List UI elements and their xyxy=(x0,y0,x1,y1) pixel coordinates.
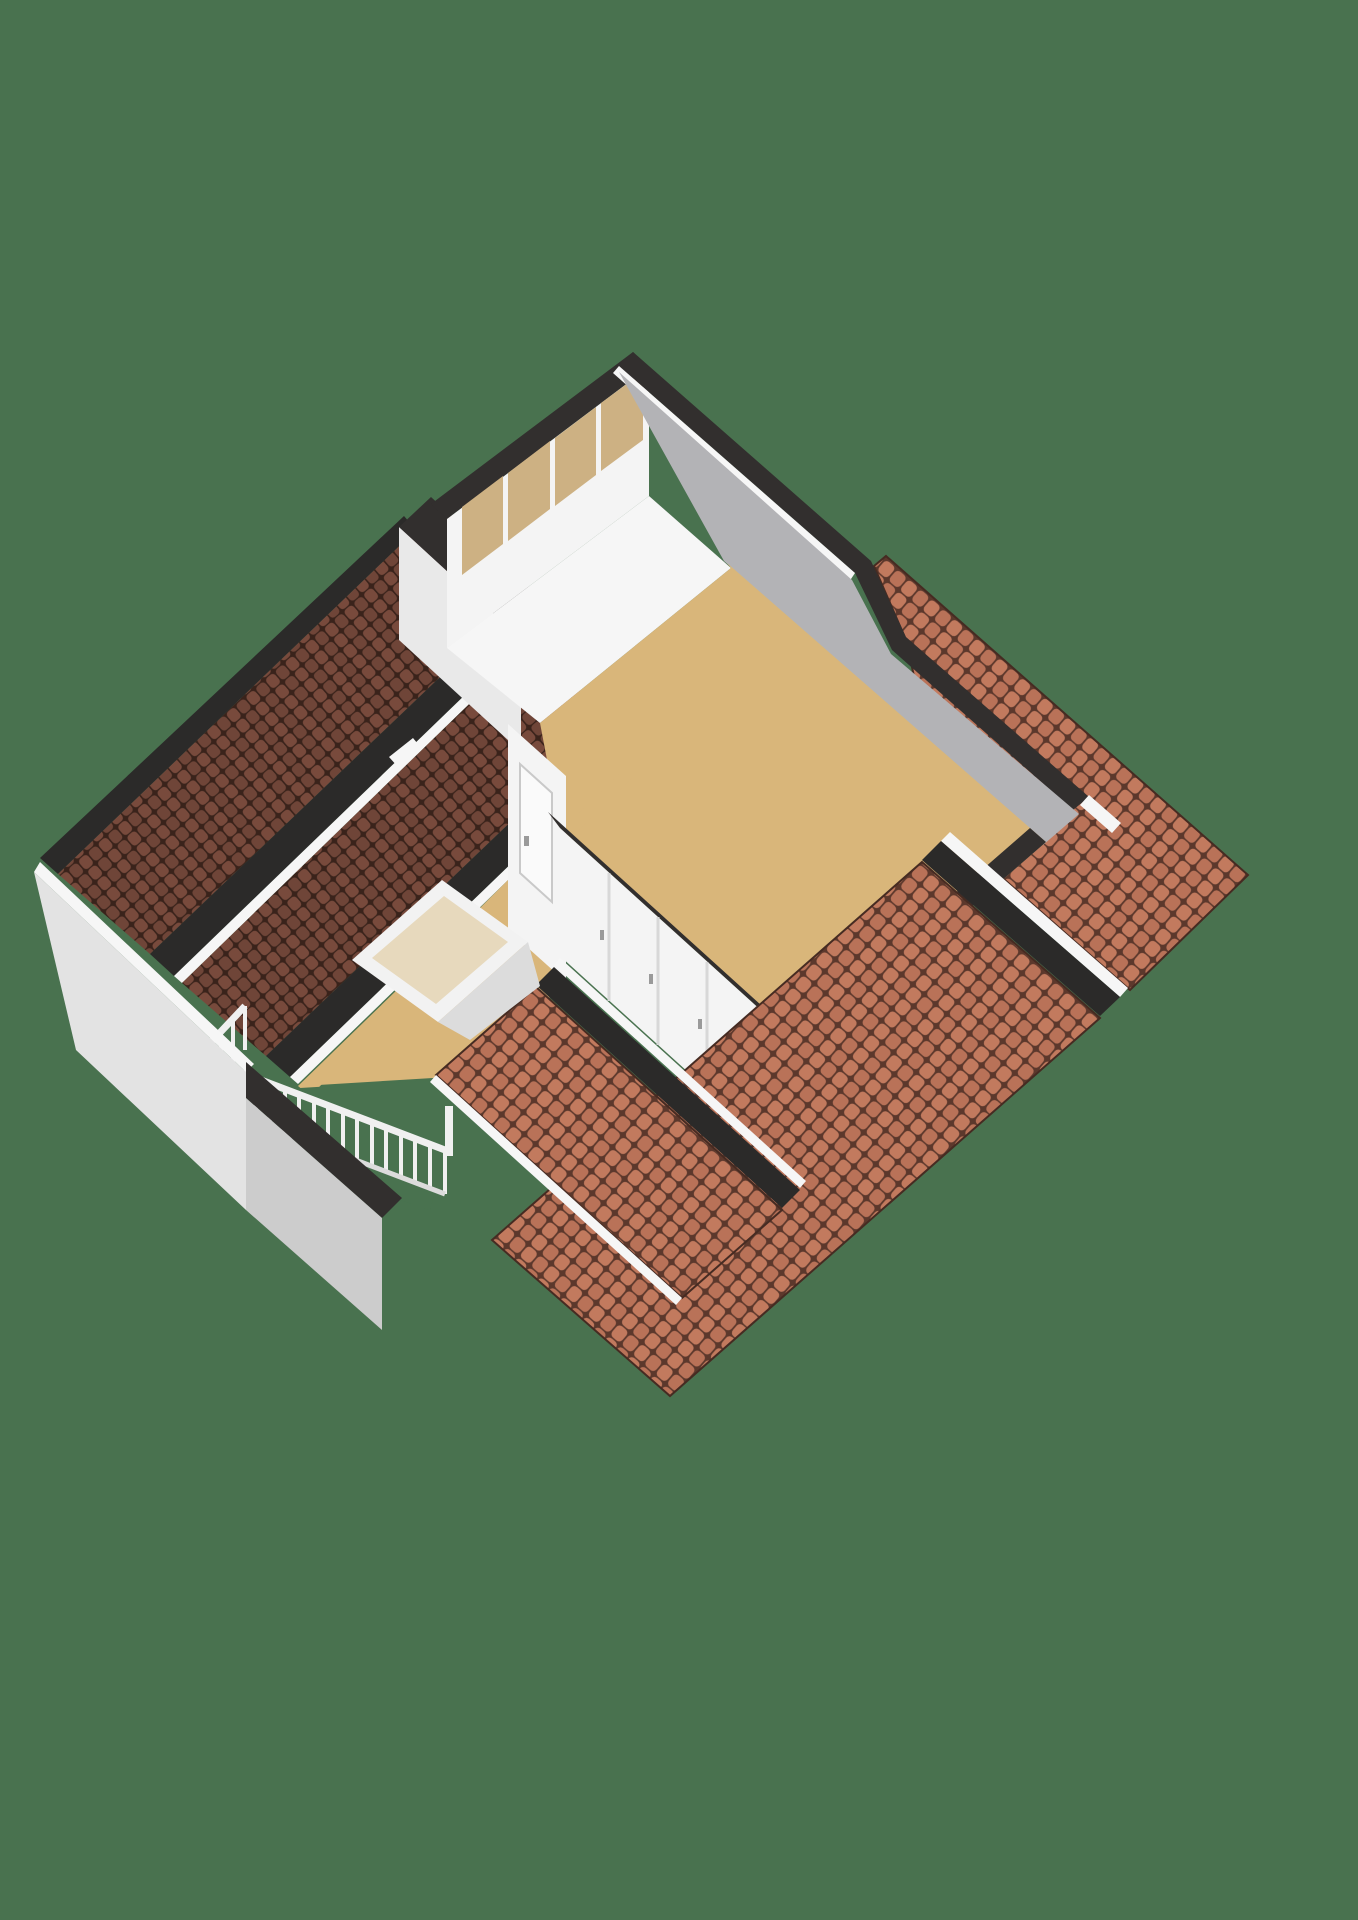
railing-newel-post xyxy=(445,1106,453,1156)
railing-post xyxy=(413,1139,417,1183)
railing-post xyxy=(384,1128,388,1172)
closet-handle-3 xyxy=(698,1019,702,1029)
railing-post xyxy=(443,1150,447,1194)
railing-post xyxy=(428,1144,432,1188)
floorplan-stage xyxy=(0,0,1358,1920)
floorplan-3d-render xyxy=(0,0,1358,1920)
closet-handle-1 xyxy=(600,930,604,940)
closet-handle-2 xyxy=(649,974,653,984)
master-room-door-handle xyxy=(524,836,529,846)
railing-post xyxy=(355,1117,359,1161)
railing-post xyxy=(399,1133,403,1177)
railing-post xyxy=(370,1122,374,1166)
railing-post xyxy=(243,1006,247,1050)
